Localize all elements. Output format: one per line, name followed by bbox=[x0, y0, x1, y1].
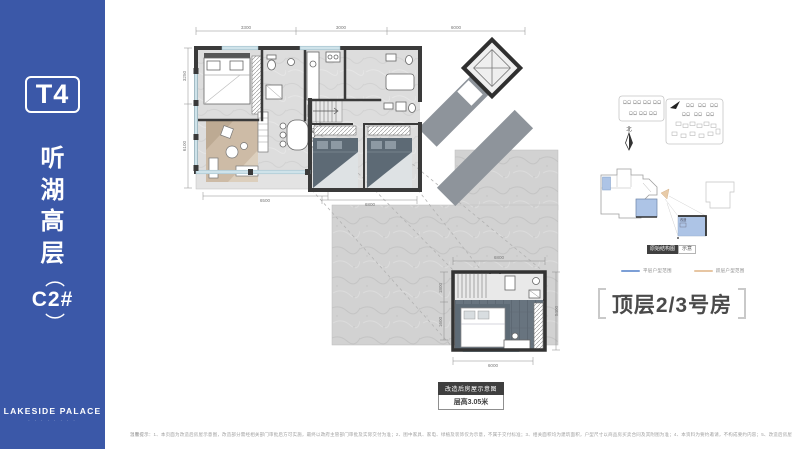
north-arrow: 北 bbox=[626, 125, 633, 150]
brand-logo: LAKESIDE PALACE · · · · · · · · bbox=[0, 406, 105, 423]
paren-close: ） bbox=[45, 312, 60, 332]
svg-text:5400: 5400 bbox=[554, 305, 559, 316]
key-plan-panel: 北 改造 bbox=[596, 84, 752, 256]
svg-text:6800: 6800 bbox=[365, 202, 376, 207]
legend: 平层户型范围 跃层户型范围 bbox=[621, 268, 745, 274]
loft-unit bbox=[453, 272, 545, 350]
svg-text:3000: 3000 bbox=[336, 25, 347, 30]
svg-text:3300: 3300 bbox=[241, 25, 252, 30]
plan-badge: 改造后房屋示意图 层高3.05米 bbox=[438, 382, 504, 410]
site-keyplan-1 bbox=[619, 96, 664, 121]
disclaimer-prefix: 温馨提示： bbox=[130, 432, 154, 437]
bracket-left bbox=[598, 288, 606, 319]
unit-title: 顶层2/3号房 bbox=[594, 288, 750, 319]
bracket-right bbox=[738, 288, 746, 319]
plan-badge-title: 改造后房屋示意图 bbox=[438, 382, 504, 395]
svg-text:1800: 1800 bbox=[438, 282, 443, 293]
title-char: 听 bbox=[41, 143, 65, 175]
sidebar: T4 听 湖 高 层 （ C2# ） LAKESIDE PALACE · · ·… bbox=[0, 0, 105, 449]
plan-badge-height: 层高3.05米 bbox=[438, 395, 504, 410]
stairs-upper bbox=[312, 100, 342, 122]
svg-text:6000: 6000 bbox=[451, 25, 462, 30]
svg-text:6000: 6000 bbox=[488, 363, 499, 368]
page: T4 听 湖 高 层 （ C2# ） LAKESIDE PALACE · · ·… bbox=[0, 0, 800, 449]
svg-text:1600: 1600 bbox=[438, 316, 443, 327]
legend-swatch-blue bbox=[621, 270, 640, 273]
svg-text:6100: 6100 bbox=[182, 140, 187, 151]
svg-text:改造: 改造 bbox=[680, 217, 687, 222]
unit-title-text: 顶层2/3号房 bbox=[612, 289, 732, 319]
paren-open: （ bbox=[45, 267, 60, 287]
brand-name: LAKESIDE PALACE bbox=[0, 406, 105, 416]
title-char: 层 bbox=[41, 238, 65, 270]
mini-location-plan: 改造 bbox=[601, 169, 734, 239]
svg-text:6500: 6500 bbox=[260, 198, 271, 203]
svg-text:3250: 3250 bbox=[182, 70, 187, 81]
floor-plan: 3300 3000 6000 3250 6100 6500 6800 6800 … bbox=[128, 14, 590, 416]
legend-swatch-tan bbox=[694, 270, 713, 273]
legend-item-loft: 跃层户型范围 bbox=[694, 268, 745, 274]
svg-text:北: 北 bbox=[626, 125, 632, 133]
disclaimer: 温馨提示：1、本页面为改造后房屋示意图，改造部分需经相关部门审批后方可实施，最终… bbox=[130, 432, 792, 438]
vertical-title: 听 湖 高 层 （ C2# ） bbox=[32, 143, 74, 330]
legend-item-flat: 平层户型范围 bbox=[621, 268, 672, 274]
structure-badge: 原始结构图 示意 bbox=[647, 245, 696, 254]
legend-label: 跃层户型范围 bbox=[716, 268, 745, 274]
disclaimer-text: 1、本页面为改造后房屋示意图，改造部分需经相关部门审批后方可实施，最终以政府主管… bbox=[154, 432, 793, 437]
svg-text:6800: 6800 bbox=[494, 255, 505, 260]
title-char: 高 bbox=[41, 206, 65, 238]
structure-badge-sub: 示意 bbox=[678, 245, 696, 254]
title-char: 湖 bbox=[41, 175, 65, 207]
legend-label: 平层户型范围 bbox=[643, 268, 672, 274]
site-keyplan-2 bbox=[666, 99, 723, 144]
unit-number: C2# bbox=[32, 288, 74, 312]
tower-badge: T4 bbox=[25, 76, 81, 113]
structure-badge-label: 原始结构图 bbox=[647, 245, 678, 254]
brand-subtitle: · · · · · · · · bbox=[0, 418, 105, 423]
